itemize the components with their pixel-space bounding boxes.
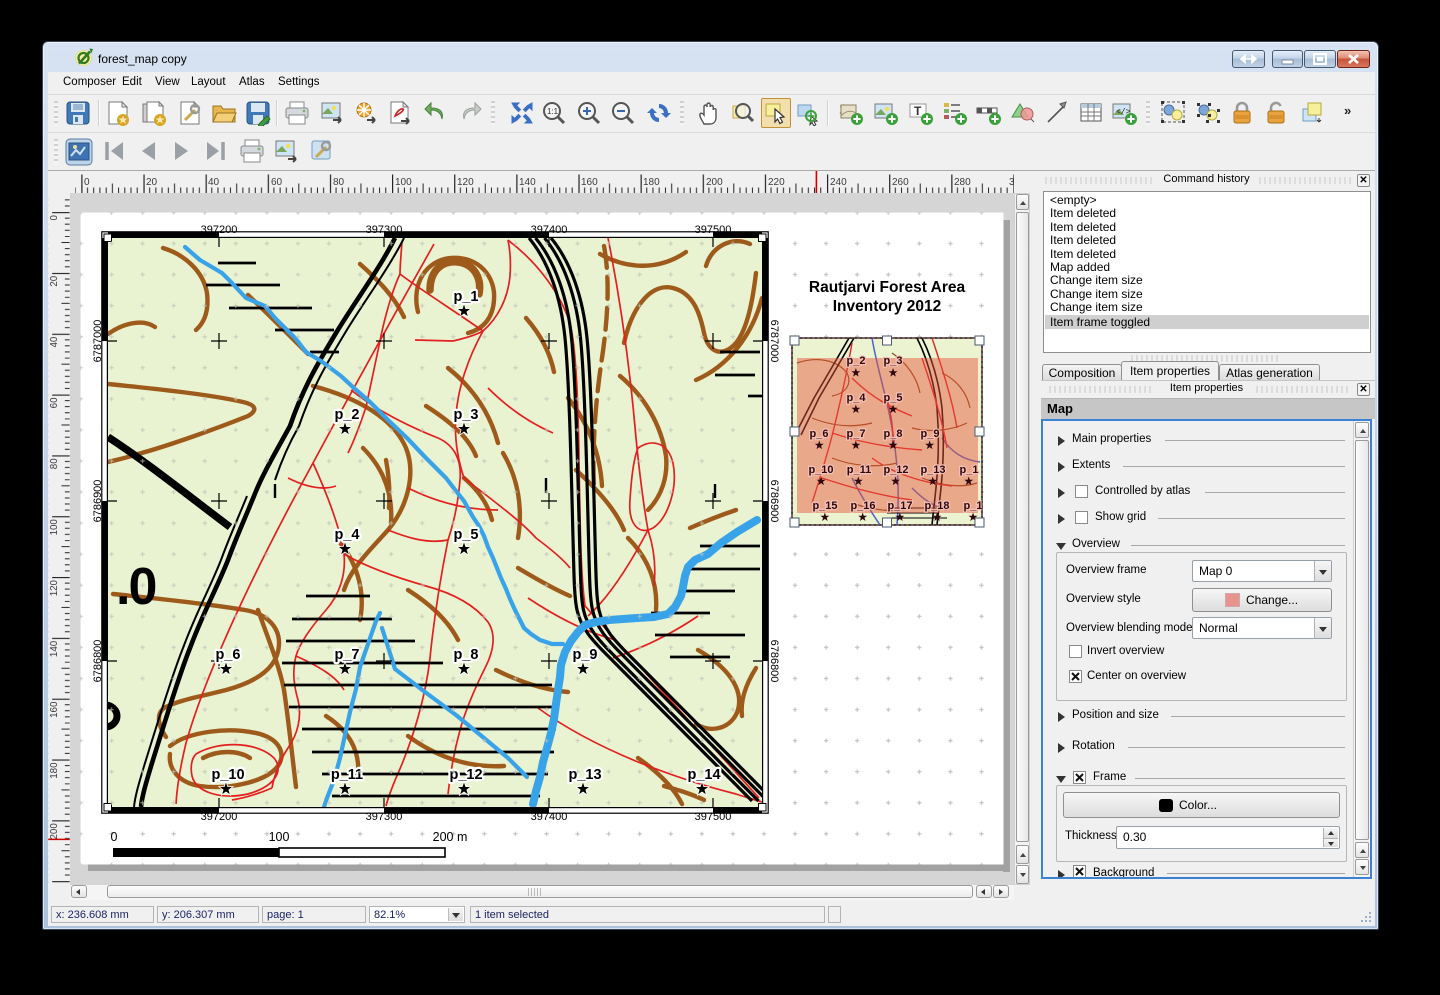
svg-text:T: T: [914, 104, 922, 118]
svg-text:200: 200: [706, 177, 723, 188]
svg-text:6786900: 6786900: [92, 480, 104, 523]
svg-text:397400: 397400: [531, 811, 568, 823]
svg-text:0: 0: [111, 830, 118, 844]
svg-text:180: 180: [643, 177, 660, 188]
svg-text:p_7: p_7: [847, 428, 866, 440]
svg-text:20: 20: [146, 177, 158, 188]
svg-text:200: 200: [49, 823, 60, 840]
svg-text:397300: 397300: [366, 811, 403, 823]
svg-text:6787000: 6787000: [92, 320, 104, 363]
svg-text:p_11: p_11: [847, 464, 871, 476]
svg-text:p_2: p_2: [847, 355, 866, 367]
svg-text:120: 120: [457, 177, 474, 188]
svg-text:Rautjarvi Forest Area: Rautjarvi Forest Area: [809, 279, 966, 296]
svg-text:180: 180: [49, 762, 60, 779]
svg-text:100: 100: [395, 177, 412, 188]
svg-text:397200: 397200: [201, 224, 238, 236]
svg-text:200 m: 200 m: [433, 830, 468, 844]
svg-text:20: 20: [49, 275, 60, 286]
svg-text:280: 280: [954, 177, 971, 188]
svg-text:p_10: p_10: [808, 464, 833, 476]
svg-text:60: 60: [49, 397, 60, 408]
svg-text:p_1: p_1: [960, 464, 979, 476]
svg-text:260: 260: [892, 177, 909, 188]
svg-text:p_18: p_18: [924, 500, 949, 512]
svg-text:397300: 397300: [366, 224, 403, 236]
svg-text:p_1: p_1: [964, 500, 983, 512]
svg-text:140: 140: [49, 640, 60, 657]
svg-text:6786800: 6786800: [92, 640, 104, 683]
svg-text:397200: 397200: [201, 811, 238, 823]
svg-text:p_16: p_16: [850, 500, 875, 512]
svg-text:p_12: p_12: [883, 464, 908, 476]
svg-text:0: 0: [84, 177, 90, 188]
svg-text:Inventory 2012: Inventory 2012: [833, 298, 942, 315]
svg-text:240: 240: [830, 177, 847, 188]
svg-text:p_3: p_3: [884, 355, 903, 367]
svg-text:1:1: 1:1: [547, 107, 559, 116]
svg-text:40: 40: [208, 177, 220, 188]
svg-text:100: 100: [49, 519, 60, 536]
svg-text:p_17: p_17: [887, 500, 912, 512]
svg-text:p_4: p_4: [847, 392, 867, 404]
svg-text:100: 100: [269, 830, 290, 844]
svg-text:120: 120: [49, 579, 60, 596]
svg-text:397400: 397400: [531, 224, 568, 236]
svg-text:p_13: p_13: [920, 464, 945, 476]
svg-text:40: 40: [49, 336, 60, 347]
svg-text:60: 60: [271, 177, 283, 188]
svg-text:220: 220: [768, 177, 785, 188]
svg-text:140: 140: [519, 177, 536, 188]
svg-text:80: 80: [49, 458, 60, 469]
svg-text:80: 80: [333, 177, 345, 188]
svg-text:160: 160: [49, 701, 60, 718]
svg-text:6786900: 6786900: [768, 480, 780, 523]
svg-text:p_6: p_6: [810, 428, 829, 440]
svg-text:6787000: 6787000: [768, 320, 780, 363]
svg-text:160: 160: [581, 177, 598, 188]
svg-text:p_5: p_5: [884, 392, 903, 404]
svg-text:300: 300: [1009, 177, 1014, 188]
svg-text:p_15: p_15: [812, 500, 837, 512]
svg-text:6786800: 6786800: [768, 640, 780, 683]
svg-text:397500: 397500: [695, 811, 732, 823]
svg-text:397500: 397500: [695, 224, 732, 236]
svg-text:p_8: p_8: [884, 428, 903, 440]
svg-text:p_9: p_9: [921, 428, 940, 440]
svg-text:0: 0: [49, 214, 60, 220]
